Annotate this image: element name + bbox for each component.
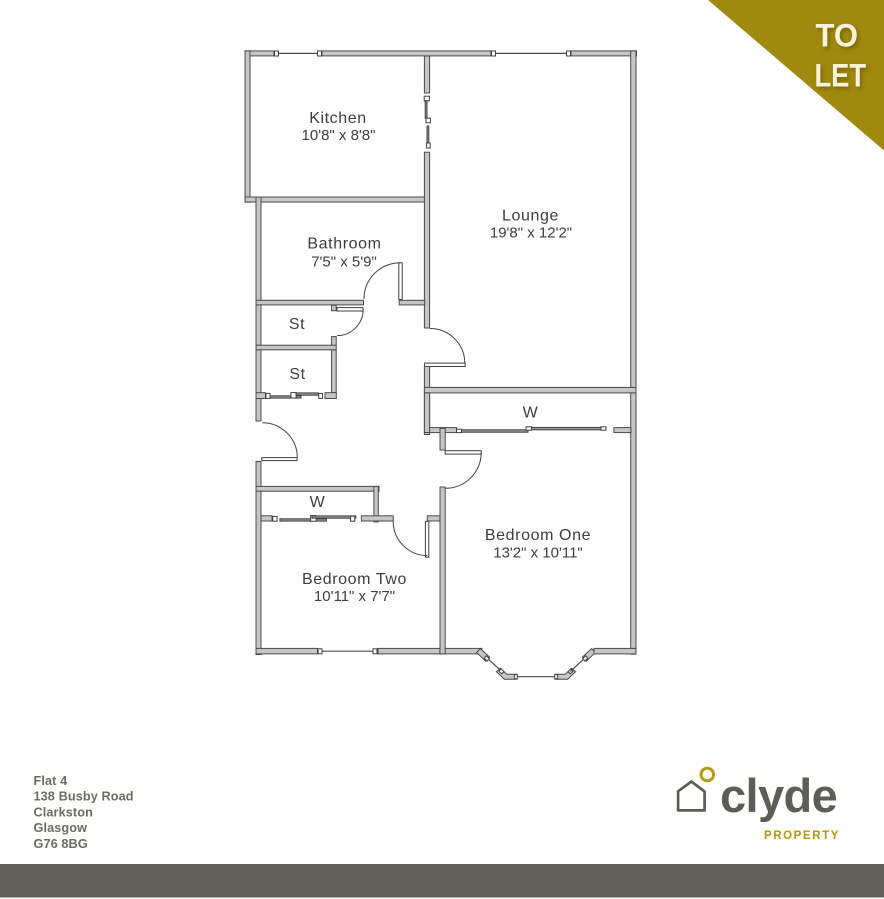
svg-text:TO: TO [816,18,859,54]
svg-text:W: W [310,494,326,511]
svg-text:Bathroom: Bathroom [307,236,381,253]
svg-text:Bedroom Two: Bedroom Two [302,571,407,588]
svg-text:10'8" x 8'8": 10'8" x 8'8" [302,127,376,144]
svg-text:St: St [289,366,305,383]
svg-text:Bedroom One: Bedroom One [485,527,591,544]
svg-text:Glasgow: Glasgow [34,821,88,835]
svg-text:Kitchen: Kitchen [309,110,367,127]
svg-text:G76 8BG: G76 8BG [34,837,88,851]
svg-text:Flat 4: Flat 4 [34,774,68,788]
svg-text:Lounge: Lounge [502,208,559,225]
svg-text:clyde: clyde [720,769,837,822]
svg-text:13'2" x 10'11": 13'2" x 10'11" [493,545,583,562]
svg-text:Clarkston: Clarkston [34,806,93,820]
svg-text:138 Busby Road: 138 Busby Road [34,790,134,804]
svg-text:19'8" x 12'2": 19'8" x 12'2" [490,225,572,242]
svg-text:LET: LET [815,58,867,94]
svg-text:7'5" x 5'9": 7'5" x 5'9" [311,254,377,271]
svg-text:PROPERTY: PROPERTY [764,830,840,842]
svg-text:10'11" x 7'7": 10'11" x 7'7" [314,588,395,605]
svg-text:St: St [289,316,305,333]
svg-text:W: W [523,405,539,422]
